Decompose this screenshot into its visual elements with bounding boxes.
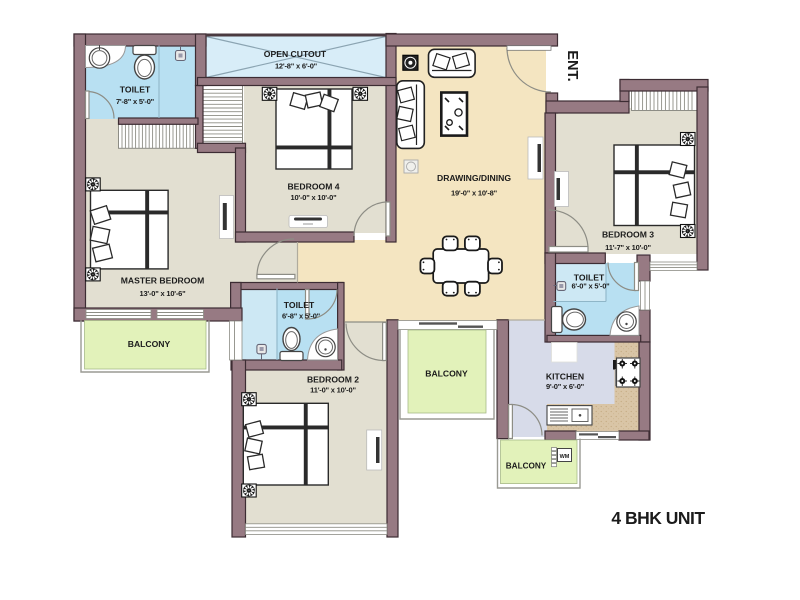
svg-text:13'-0" x 10'-6": 13'-0" x 10'-6" — [139, 289, 186, 298]
svg-text:BALCONY: BALCONY — [506, 462, 547, 471]
svg-text:11'-7" x 10'-0": 11'-7" x 10'-0" — [605, 243, 651, 252]
svg-text:BEDROOM 2: BEDROOM 2 — [307, 375, 359, 385]
svg-text:TOILET: TOILET — [284, 300, 315, 310]
svg-text:12'-8" x 6'-0": 12'-8" x 6'-0" — [275, 62, 318, 71]
svg-text:4 BHK UNIT: 4 BHK UNIT — [611, 508, 705, 528]
svg-text:10'-0" x 10'-0": 10'-0" x 10'-0" — [290, 193, 337, 202]
svg-text:OPEN CUTOUT: OPEN CUTOUT — [264, 49, 327, 59]
svg-text:KITCHEN: KITCHEN — [546, 372, 584, 382]
svg-text:WM: WM — [560, 454, 570, 460]
svg-text:7'-8" x 5'-0": 7'-8" x 5'-0" — [116, 97, 155, 106]
svg-text:BEDROOM 3: BEDROOM 3 — [602, 230, 654, 240]
svg-text:TOILET: TOILET — [120, 85, 151, 95]
svg-text:BEDROOM 4: BEDROOM 4 — [287, 182, 339, 192]
svg-text:6'-8" x 5'-0": 6'-8" x 5'-0" — [282, 312, 321, 321]
svg-text:11'-0" x 10'-0": 11'-0" x 10'-0" — [310, 386, 356, 395]
svg-text:19'-0" x 10'-8": 19'-0" x 10'-8" — [451, 189, 498, 198]
svg-text:6'-0" x 5'-0": 6'-0" x 5'-0" — [571, 282, 610, 291]
svg-text:BALCONY: BALCONY — [425, 369, 468, 379]
svg-text:BALCONY: BALCONY — [128, 339, 171, 349]
svg-text:9'-0" x 6'-0": 9'-0" x 6'-0" — [546, 382, 585, 391]
svg-text:MASTER BEDROOM: MASTER BEDROOM — [121, 276, 205, 286]
svg-text:ENT.: ENT. — [564, 50, 580, 81]
svg-text:DRAWING/DINING: DRAWING/DINING — [437, 173, 511, 183]
